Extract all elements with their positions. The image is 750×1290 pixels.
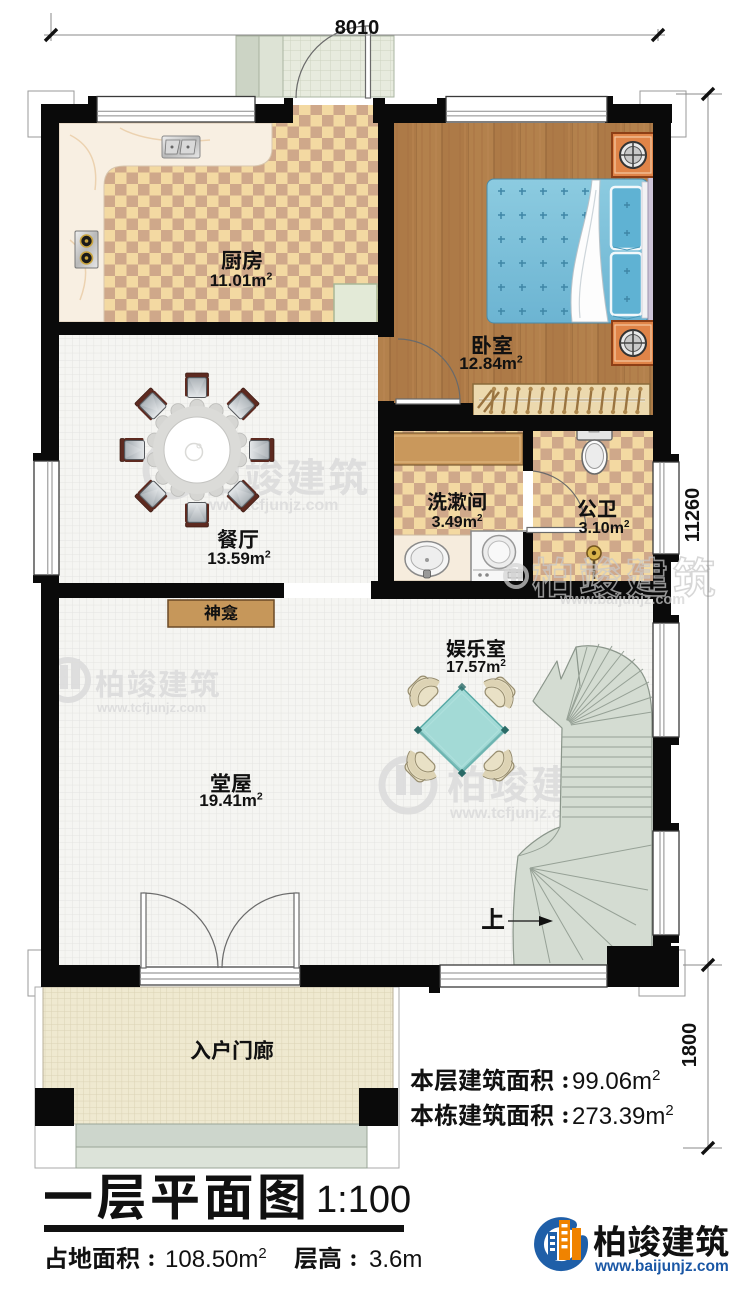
svg-text:108.50m2: 108.50m2 <box>165 1246 267 1273</box>
svg-text:3.10m2: 3.10m2 <box>579 519 630 537</box>
svg-text:www.baijunjz.com: www.baijunjz.com <box>594 1258 729 1275</box>
svg-text:www.baijunjz.com: www.baijunjz.com <box>559 592 685 608</box>
svg-text:1800: 1800 <box>679 1023 701 1068</box>
svg-text:1:100: 1:100 <box>316 1179 411 1221</box>
svg-text:www.tcfjunjz.com: www.tcfjunjz.com <box>96 700 206 715</box>
svg-text:11260: 11260 <box>682 488 704 543</box>
svg-text:3.49m2: 3.49m2 <box>432 513 483 531</box>
svg-text:3.6m: 3.6m <box>369 1246 422 1273</box>
svg-text:13.59m2: 13.59m2 <box>207 549 271 569</box>
svg-text:19.41m2: 19.41m2 <box>199 791 263 811</box>
svg-text:273.39m2: 273.39m2 <box>572 1103 674 1130</box>
svg-text:www.tcfjunjz.com: www.tcfjunjz.com <box>203 497 339 514</box>
svg-text:12.84m2: 12.84m2 <box>459 354 523 374</box>
svg-text:99.06m2: 99.06m2 <box>572 1068 660 1095</box>
svg-text:8010: 8010 <box>335 17 380 39</box>
svg-text:17.57m2: 17.57m2 <box>446 658 506 676</box>
svg-text:11.01m2: 11.01m2 <box>210 271 273 291</box>
